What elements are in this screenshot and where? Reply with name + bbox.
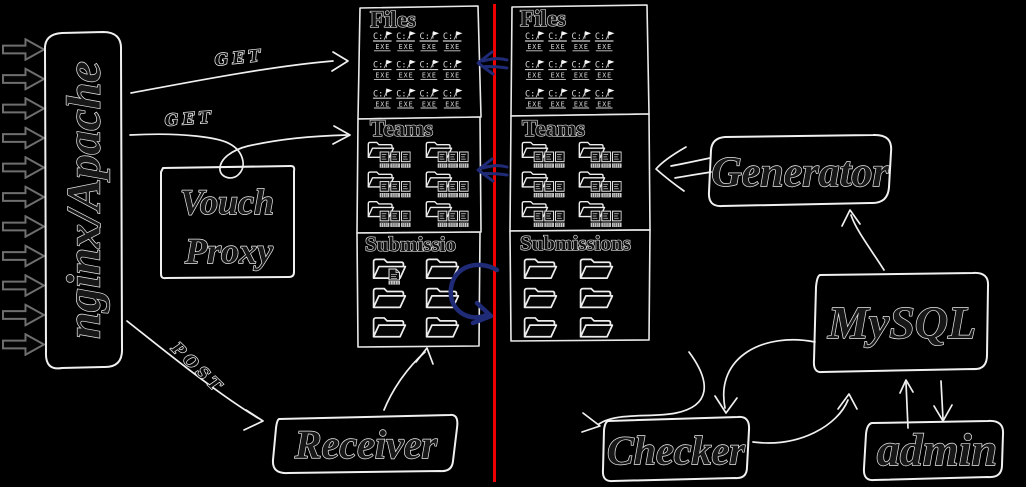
incoming-request-arrow-icon bbox=[3, 275, 44, 296]
diagram-canvas: C:/ EXE bbox=[0, 0, 1026, 487]
checker-label: Checker bbox=[607, 428, 745, 473]
get-files-label: GET bbox=[214, 45, 265, 69]
mysql-label: MySQL bbox=[827, 297, 976, 348]
sync-teams-arrow bbox=[478, 159, 507, 181]
msdos-exe-icon bbox=[572, 60, 592, 80]
incoming-request-arrow-icon bbox=[3, 69, 44, 90]
right-submissions-title: Submissions bbox=[520, 231, 631, 255]
incoming-request-arrow-icon bbox=[3, 128, 44, 149]
receiver-to-submissions-arrowhead bbox=[416, 348, 433, 364]
incoming-request-arrow-icon bbox=[3, 187, 44, 208]
msdos-exe-icon bbox=[525, 88, 545, 108]
incoming-request-arrow-icon bbox=[3, 216, 44, 237]
submissions-to-checker-arrowhead bbox=[582, 413, 600, 432]
sync-files-arrow bbox=[478, 52, 507, 74]
right-files-title: Files bbox=[520, 6, 566, 31]
incoming-request-arrow-icon bbox=[3, 98, 44, 119]
msdos-exe-icon bbox=[373, 31, 393, 51]
msdos-exe-icon bbox=[548, 88, 568, 108]
vouch-proxy-label-line1: Vouch bbox=[180, 182, 274, 222]
msdos-exe-icon bbox=[595, 88, 615, 108]
receiver-to-submissions-arrow bbox=[384, 352, 425, 410]
mysql-to-admin-arrow bbox=[941, 381, 943, 419]
post-label: POST bbox=[167, 338, 228, 398]
msdos-exe-icon bbox=[595, 31, 615, 51]
generator-to-teams-arrow bbox=[656, 147, 711, 191]
msdos-exe-icon bbox=[420, 88, 440, 108]
checker-to-mysql-arrow bbox=[753, 400, 848, 443]
msdos-exe-icon bbox=[373, 60, 393, 80]
admin-label: admin bbox=[877, 424, 997, 475]
msdos-exe-icon bbox=[572, 31, 592, 51]
msdos-exe-icon bbox=[595, 60, 615, 80]
msdos-exe-icon bbox=[572, 88, 592, 108]
incoming-request-arrow-icon bbox=[3, 246, 44, 267]
msdos-exe-icon bbox=[443, 88, 463, 108]
ingress-arrows bbox=[3, 39, 44, 355]
msdos-exe-icon bbox=[373, 88, 393, 108]
mysql-to-generator-arrow bbox=[851, 215, 884, 270]
left-submissions-title: Submissio bbox=[365, 232, 456, 256]
incoming-request-arrow-icon bbox=[3, 39, 44, 60]
generator-label: Generator bbox=[711, 150, 889, 196]
msdos-exe-icon bbox=[443, 60, 463, 80]
post-arrowhead bbox=[244, 410, 263, 430]
mysql-to-generator-arrowhead bbox=[842, 210, 860, 226]
vouch-proxy-label-line2: Proxy bbox=[184, 231, 274, 271]
msdos-exe-icon bbox=[420, 60, 440, 80]
msdos-exe-icon bbox=[548, 31, 568, 51]
incoming-request-arrow-icon bbox=[3, 157, 44, 178]
mysql-to-checker-arrowhead bbox=[715, 396, 737, 413]
msdos-exe-icon bbox=[548, 60, 568, 80]
msdos-exe-icon bbox=[443, 31, 463, 51]
right-teams-title: Teams bbox=[522, 116, 585, 141]
get-files-arrowhead bbox=[332, 52, 348, 71]
left-teams-title: Teams bbox=[370, 116, 433, 141]
msdos-exe-icon bbox=[420, 31, 440, 51]
receiver-label: Receiver bbox=[294, 422, 438, 467]
left-files-title: Files bbox=[370, 7, 416, 32]
msdos-exe-icon bbox=[525, 31, 545, 51]
submissions-to-checker-arrow bbox=[599, 352, 704, 424]
incoming-request-arrow-icon bbox=[3, 305, 44, 326]
admin-to-mysql-arrow bbox=[906, 383, 908, 428]
architecture-diagram: C:/ EXE bbox=[0, 0, 1026, 487]
get-teams-label: GET bbox=[164, 107, 215, 129]
msdos-exe-icon bbox=[525, 60, 545, 80]
incoming-request-arrow-icon bbox=[3, 334, 44, 355]
msdos-exe-icon bbox=[396, 88, 416, 108]
msdos-exe-icon bbox=[396, 60, 416, 80]
new-submission-file-icon bbox=[389, 269, 401, 285]
msdos-exe-icon bbox=[396, 31, 416, 51]
ingress-label: nginx/Apache bbox=[58, 61, 111, 338]
